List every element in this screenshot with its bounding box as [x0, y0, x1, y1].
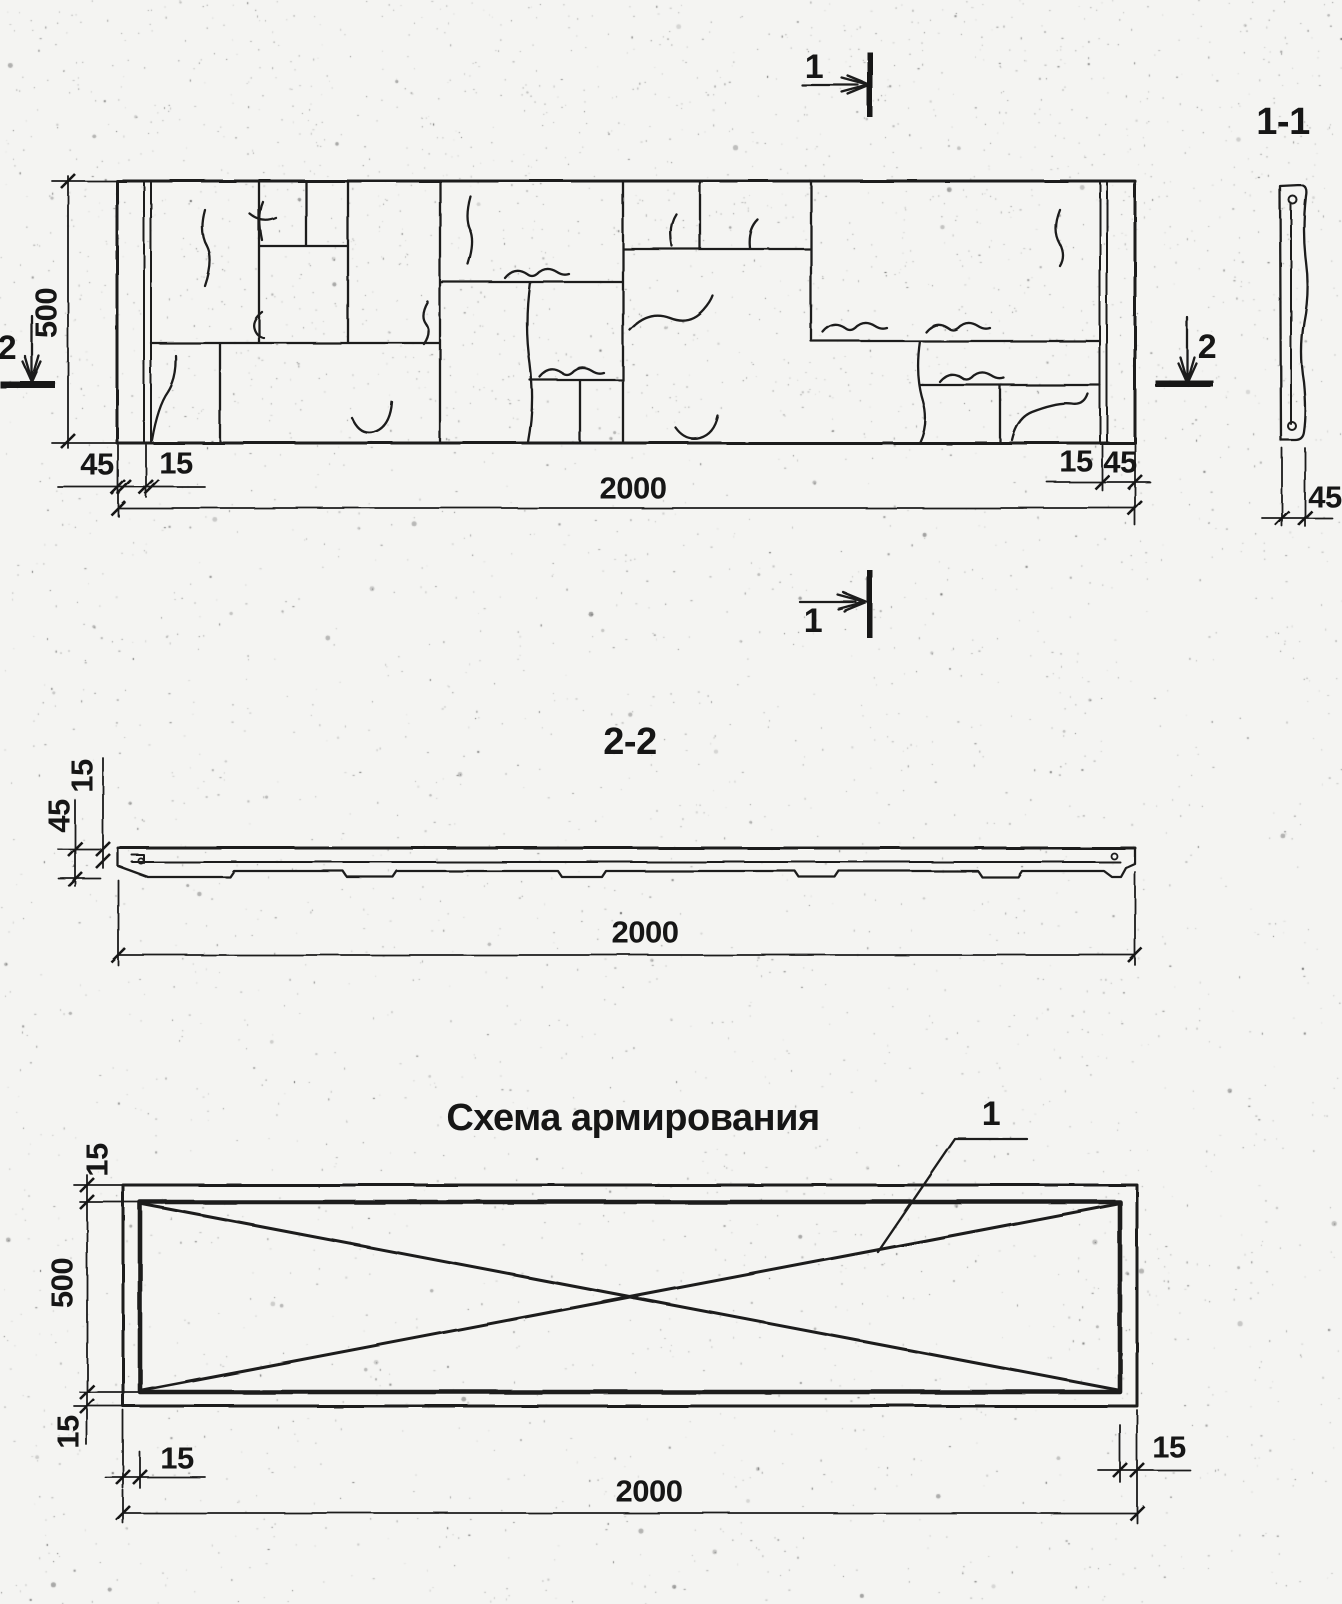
scheme-dim-left-15: 15 — [160, 1441, 194, 1476]
section-1-1-dim-45: 45 — [1308, 480, 1342, 515]
reinforcement-scheme-view — [74, 1139, 1190, 1523]
scheme-dim-500: 500 — [45, 1258, 80, 1308]
section-2-2-view — [58, 758, 1142, 965]
section-markers — [0, 52, 1213, 638]
anchor-loop-right — [1111, 853, 1117, 859]
marker-2-left-cut-bar — [0, 381, 55, 388]
rebar-hook-top — [1289, 196, 1297, 204]
marker-1-bottom-cut-bar — [867, 570, 873, 638]
reinforcement-title: Схема армирования — [446, 1097, 819, 1139]
section-cut-label-2-right: 2 — [1198, 328, 1216, 366]
stone-block-lines — [151, 182, 1100, 442]
section-cut-label-2-left: 2 — [0, 329, 16, 367]
section-2-2-dim-45: 45 — [42, 799, 77, 833]
dim-label-left-45: 45 — [80, 447, 114, 482]
section-2-2-dim-ticks — [68, 842, 1142, 962]
scheme-dim-right-15: 15 — [1152, 1430, 1186, 1465]
dim-label-length-2000: 2000 — [600, 471, 667, 506]
section-1-1-outline — [1280, 185, 1308, 440]
section-1-1-view — [1262, 185, 1332, 526]
stone-crack-squiggles — [152, 196, 1088, 440]
marker-1-top-cut-bar — [867, 52, 873, 117]
mesh-diagonals — [142, 1204, 1118, 1390]
section-cut-label-1-top: 1 — [805, 48, 823, 86]
section-2-2-dim-15: 15 — [65, 759, 100, 793]
dim-ticks — [61, 174, 1142, 515]
dim-label-height-500: 500 — [29, 288, 64, 338]
section-2-2-dim-2000: 2000 — [612, 915, 679, 950]
marker-2-right-arrow — [1178, 317, 1196, 383]
scheme-dim-2000: 2000 — [616, 1474, 683, 1509]
section-2-2-title: 2-2 — [603, 721, 656, 763]
dim-label-left-15: 15 — [159, 446, 193, 481]
marker-2-right-cut-bar — [1155, 380, 1213, 387]
dim-label-right-15: 15 — [1059, 444, 1093, 479]
elevation-view — [117, 181, 1135, 443]
dim-label-right-45: 45 — [1103, 445, 1137, 480]
scanned-drawing-page: 1 1 2 2 500 45 15 15 45 2000 1-1 45 2-2 … — [0, 0, 1342, 1604]
panel-drawing: 1 1 2 2 500 45 15 15 45 2000 1-1 45 2-2 … — [0, 0, 1342, 1604]
scheme-dim-top-15: 15 — [80, 1143, 115, 1177]
rebar-item-label-1: 1 — [982, 1095, 1000, 1133]
scheme-dim-bottom-15: 15 — [51, 1415, 86, 1449]
section-1-1-title: 1-1 — [1256, 101, 1310, 143]
section-cut-label-1-bottom: 1 — [804, 602, 822, 640]
panel-joint-lines — [144, 182, 1107, 442]
scheme-dim-lines — [74, 1175, 1190, 1523]
